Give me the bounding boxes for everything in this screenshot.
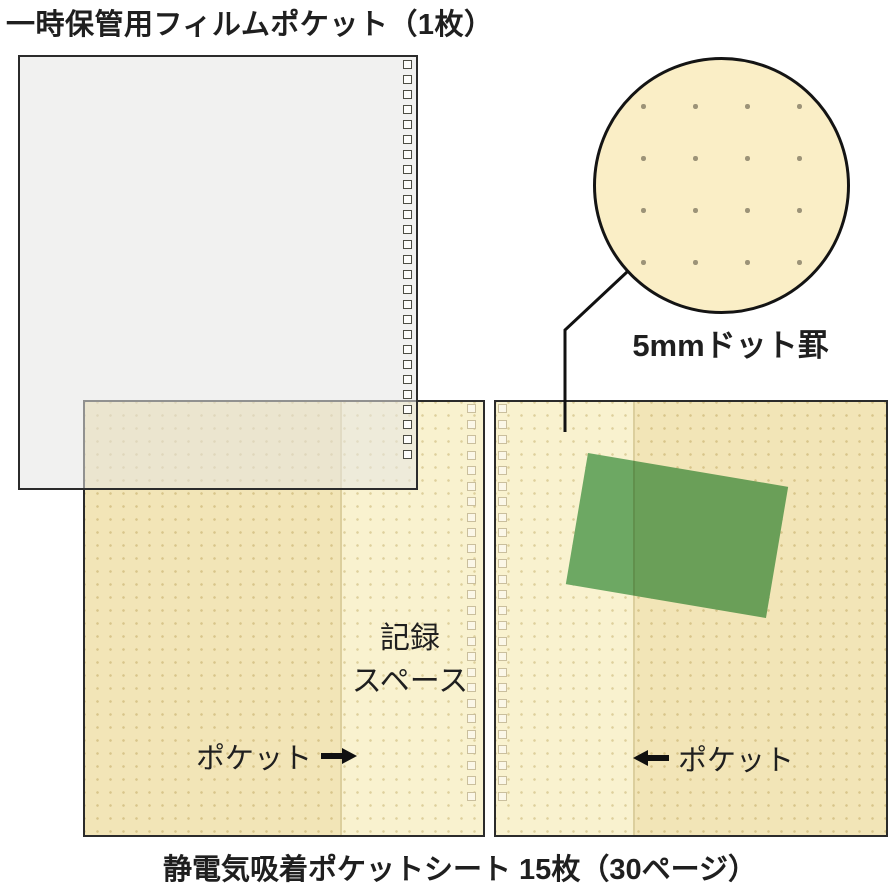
binding-hole (467, 792, 476, 801)
binding-hole (498, 621, 507, 630)
binding-hole (498, 683, 507, 692)
binding-hole (403, 105, 412, 114)
binding-hole (467, 761, 476, 770)
binding-hole (467, 513, 476, 522)
binding-hole (467, 466, 476, 475)
pocket-label-left: ポケット (196, 735, 358, 777)
binding-hole (403, 345, 412, 354)
binding-hole (467, 451, 476, 460)
binding-hole (403, 420, 412, 429)
binding-hole (498, 482, 507, 491)
binding-hole (403, 120, 412, 129)
binding-hole (403, 450, 412, 459)
dot-grid-dot (641, 156, 646, 161)
binding-hole (467, 482, 476, 491)
binding-hole (403, 150, 412, 159)
dot-grid-dot (797, 104, 802, 109)
binding-hole (498, 714, 507, 723)
dot-grid-dot (693, 208, 698, 213)
binding-hole (403, 300, 412, 309)
binding-hole (403, 90, 412, 99)
recording-space-label: 記録 スペース (330, 617, 490, 703)
binding-hole (498, 544, 507, 553)
recording-space-line2: スペース (330, 660, 490, 703)
binding-hole (403, 270, 412, 279)
film-pocket-sheet (18, 55, 418, 490)
left-sheet-binding-holes (467, 404, 476, 801)
binding-hole (467, 420, 476, 429)
binding-hole (498, 776, 507, 785)
dot-grid-dot (797, 156, 802, 161)
dot-grid-dot (641, 104, 646, 109)
dot-grid-dot (797, 208, 802, 213)
dot-grid-dot (745, 156, 750, 161)
dot-grid-dot (693, 104, 698, 109)
binding-hole (403, 180, 412, 189)
binding-hole (498, 451, 507, 460)
left-arrow-icon (632, 749, 669, 767)
dot-grid-dot (693, 156, 698, 161)
binding-hole (403, 375, 412, 384)
binding-hole (403, 255, 412, 264)
binding-hole (403, 390, 412, 399)
binding-hole (403, 240, 412, 249)
dot-grid-dot (745, 208, 750, 213)
binding-hole (467, 404, 476, 413)
binding-hole (467, 745, 476, 754)
binding-hole (403, 135, 412, 144)
binding-hole (498, 606, 507, 615)
right-arrow-icon (321, 747, 358, 765)
binding-hole (498, 668, 507, 677)
pocket-label-right-text: ポケット (678, 737, 794, 779)
binding-hole (498, 466, 507, 475)
binding-hole (498, 730, 507, 739)
binding-hole (403, 225, 412, 234)
magnifier-circle (593, 57, 850, 314)
dot-grid-dot (641, 260, 646, 265)
pocket-label-left-text: ポケット (196, 735, 312, 777)
binding-hole (498, 559, 507, 568)
binding-hole (467, 435, 476, 444)
binding-hole (467, 730, 476, 739)
binding-hole (467, 590, 476, 599)
binding-hole (403, 360, 412, 369)
binding-hole (403, 330, 412, 339)
binding-hole (498, 652, 507, 661)
binding-hole (498, 792, 507, 801)
binding-hole (498, 745, 507, 754)
binding-hole (403, 435, 412, 444)
bottom-caption: 静電気吸着ポケットシート 15枚（30ページ） (55, 846, 865, 888)
binding-hole (467, 528, 476, 537)
product-title: 一時保管用フィルムポケット（1枚） (6, 1, 493, 43)
binding-hole (498, 404, 507, 413)
binding-hole (403, 210, 412, 219)
magnifier-caption: 5mmドット罫 (608, 320, 853, 365)
dot-grid-dot (797, 260, 802, 265)
binding-hole (467, 575, 476, 584)
binding-hole (467, 714, 476, 723)
binding-hole (498, 528, 507, 537)
binding-hole (467, 776, 476, 785)
binding-hole (467, 544, 476, 553)
binding-hole (498, 513, 507, 522)
binding-hole (498, 435, 507, 444)
binding-hole (403, 60, 412, 69)
binding-hole (498, 575, 507, 584)
recording-space-line1: 記録 (330, 617, 490, 660)
binding-hole (498, 637, 507, 646)
binding-hole (403, 195, 412, 204)
dot-grid-dot (745, 260, 750, 265)
binding-hole (467, 559, 476, 568)
binding-hole (403, 165, 412, 174)
dot-grid-dot (641, 208, 646, 213)
pocket-label-right: ポケット (632, 737, 794, 779)
binding-hole (498, 699, 507, 708)
binding-hole (467, 606, 476, 615)
film-pocket-binding-holes (403, 60, 412, 459)
binding-hole (403, 285, 412, 294)
binding-hole (467, 497, 476, 506)
binding-hole (403, 315, 412, 324)
binding-hole (403, 75, 412, 84)
binding-hole (498, 420, 507, 429)
binding-hole (498, 761, 507, 770)
binding-hole (498, 497, 507, 506)
dot-grid-dot (693, 260, 698, 265)
binding-hole (498, 590, 507, 599)
binding-hole (403, 405, 412, 414)
dot-grid-dot (745, 104, 750, 109)
right-sheet-binding-holes (498, 404, 507, 801)
